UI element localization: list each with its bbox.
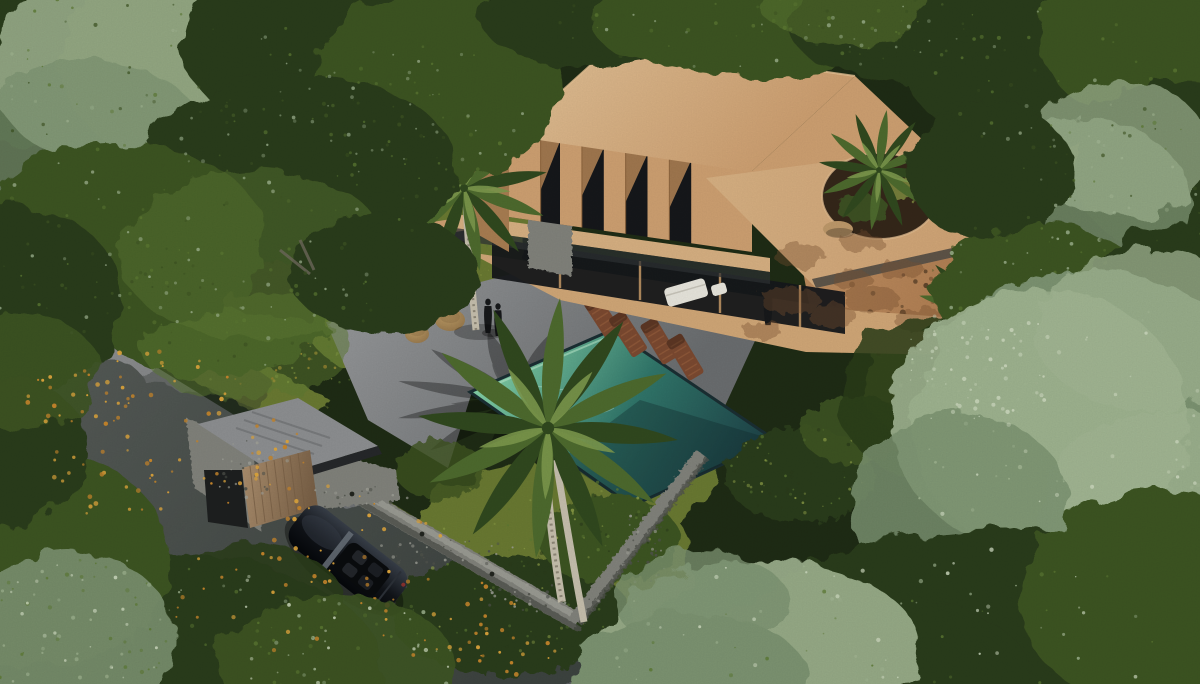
render-stage xyxy=(0,0,1200,684)
aerial-render xyxy=(0,0,1200,684)
grain-overlay xyxy=(0,0,1200,684)
